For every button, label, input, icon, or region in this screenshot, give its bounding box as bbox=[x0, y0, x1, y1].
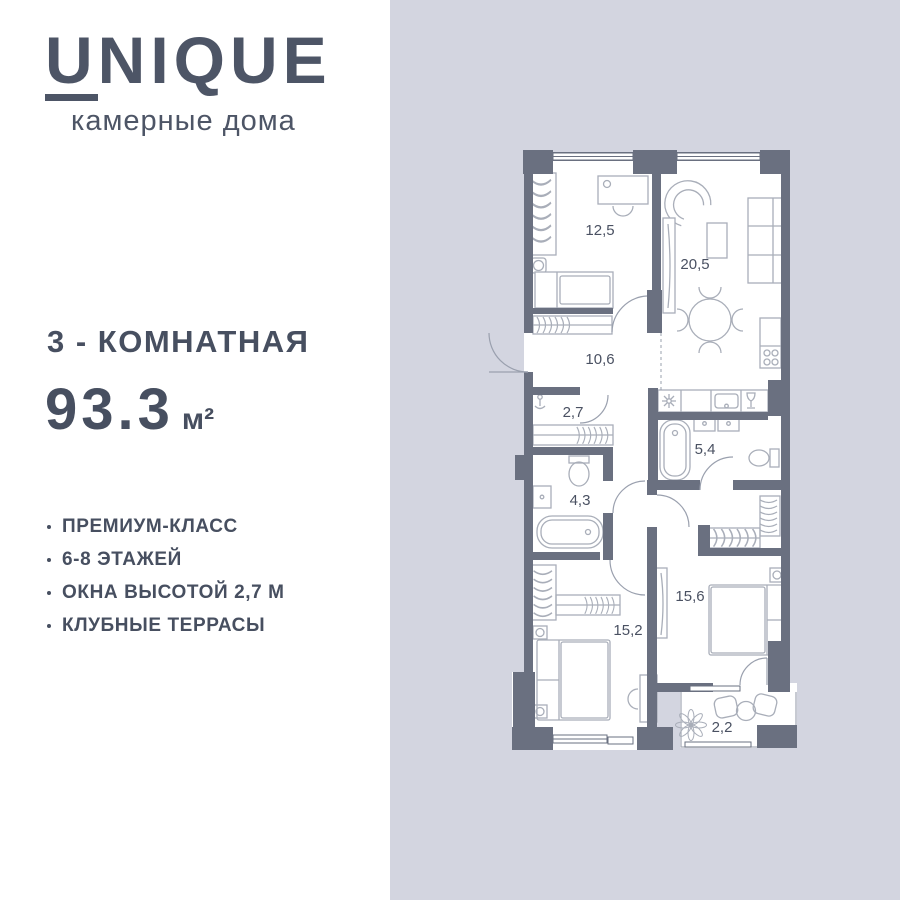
feature-item: ПРЕМИУМ-КЛАСС bbox=[47, 516, 285, 538]
info-panel: UNIQUE камерные дома 3 - КОМНАТНАЯ 93.3м… bbox=[0, 0, 390, 900]
area-unit: м² bbox=[182, 403, 214, 436]
floor-plan-svg: 12,5 20,5 10,6 2,7 5,4 4,3 15,2 15,6 2,2 bbox=[485, 148, 805, 763]
feature-item: КЛУБНЫЕ ТЕРРАСЫ bbox=[47, 615, 285, 637]
listing-title: 3 - КОМНАТНАЯ bbox=[47, 324, 309, 360]
feature-item: ОКНА ВЫСОТОЙ 2,7 М bbox=[47, 582, 285, 604]
kitchen-sink-icon bbox=[662, 394, 676, 408]
feature-label: ОКНА ВЫСОТОЙ 2,7 М bbox=[62, 582, 285, 604]
bullet-icon bbox=[47, 525, 51, 529]
room-area-label: 15,6 bbox=[675, 588, 704, 605]
feature-label: КЛУБНЫЕ ТЕРРАСЫ bbox=[62, 615, 265, 637]
room-area-label: 15,2 bbox=[613, 622, 642, 639]
bullet-icon bbox=[47, 624, 51, 628]
room-area-label: 4,3 bbox=[570, 492, 591, 509]
feature-item: 6-8 ЭТАЖЕЙ bbox=[47, 549, 285, 571]
brand-initial-underlined: U bbox=[45, 27, 98, 101]
brand-logo: UNIQUE камерные дома bbox=[45, 26, 332, 138]
area-value: 93.3 bbox=[45, 377, 174, 442]
bullet-icon bbox=[47, 558, 51, 562]
room-area-label: 5,4 bbox=[695, 441, 716, 458]
room-area-label: 2,7 bbox=[563, 404, 584, 421]
feature-label: 6-8 ЭТАЖЕЙ bbox=[62, 549, 182, 571]
brand-name-rest: NIQUE bbox=[98, 23, 332, 97]
room-area-label: 20,5 bbox=[680, 256, 709, 273]
flyer-page: { "brand": { "initial": "U", "rest": "NI… bbox=[0, 0, 900, 900]
feature-list: ПРЕМИУМ-КЛАСС 6-8 ЭТАЖЕЙ ОКНА ВЫСОТОЙ 2,… bbox=[47, 516, 285, 648]
brand-tagline: камерные дома bbox=[45, 105, 332, 138]
window-mirror-icon bbox=[656, 568, 667, 638]
listing-area: 93.3м² bbox=[45, 376, 214, 443]
room-area-label: 10,6 bbox=[585, 351, 614, 368]
feature-label: ПРЕМИУМ-КЛАСС bbox=[62, 516, 238, 538]
room-area-label: 12,5 bbox=[585, 222, 614, 239]
floor-plan: 12,5 20,5 10,6 2,7 5,4 4,3 15,2 15,6 2,2 bbox=[485, 148, 805, 763]
brand-name: UNIQUE bbox=[45, 26, 332, 101]
bullet-icon bbox=[47, 591, 51, 595]
room-area-label: 2,2 bbox=[712, 719, 733, 736]
bed-icon bbox=[537, 640, 610, 720]
tv-panel-icon bbox=[663, 218, 675, 313]
bed-icon bbox=[535, 272, 613, 308]
